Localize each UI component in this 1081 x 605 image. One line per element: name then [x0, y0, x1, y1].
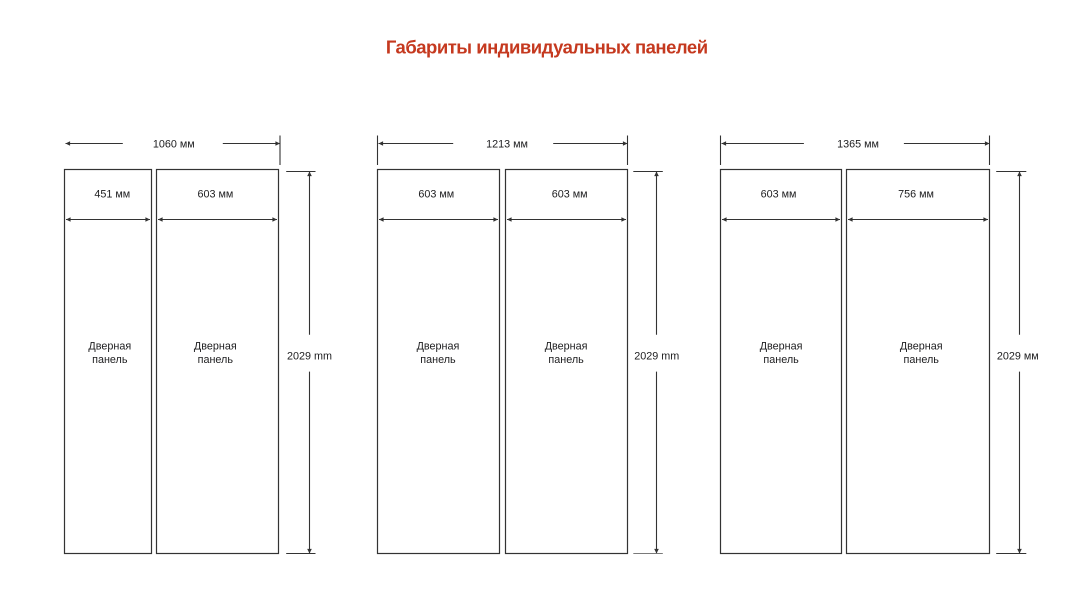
svg-text:603 мм: 603 мм: [418, 188, 454, 200]
svg-text:Двернаяпанель: Двернаяпанель: [417, 341, 460, 366]
svg-text:1060 мм: 1060 мм: [153, 138, 195, 150]
svg-text:Двернаяпанель: Двернаяпанель: [900, 341, 943, 366]
svg-text:1365 мм: 1365 мм: [837, 138, 879, 150]
svg-text:Двернаяпанель: Двернаяпанель: [760, 341, 803, 366]
svg-text:Двернаяпанель: Двернаяпанель: [194, 341, 237, 366]
svg-text:451 мм: 451 мм: [94, 188, 130, 200]
svg-text:1213 мм: 1213 мм: [486, 138, 528, 150]
svg-text:Двернаяпанель: Двернаяпанель: [88, 341, 131, 366]
svg-text:603 мм: 603 мм: [552, 188, 588, 200]
svg-text:2029 мм: 2029 мм: [997, 351, 1039, 363]
svg-text:Двернаяпанель: Двернаяпанель: [545, 341, 588, 366]
svg-text:2029 mm: 2029 mm: [287, 351, 332, 363]
svg-text:603 мм: 603 мм: [197, 188, 233, 200]
svg-text:Габариты индивидуальных панеле: Габариты индивидуальных панелей: [386, 37, 708, 58]
svg-text:2029 mm: 2029 mm: [634, 351, 679, 363]
svg-text:756 мм: 756 мм: [898, 188, 934, 200]
svg-text:603 мм: 603 мм: [761, 188, 797, 200]
